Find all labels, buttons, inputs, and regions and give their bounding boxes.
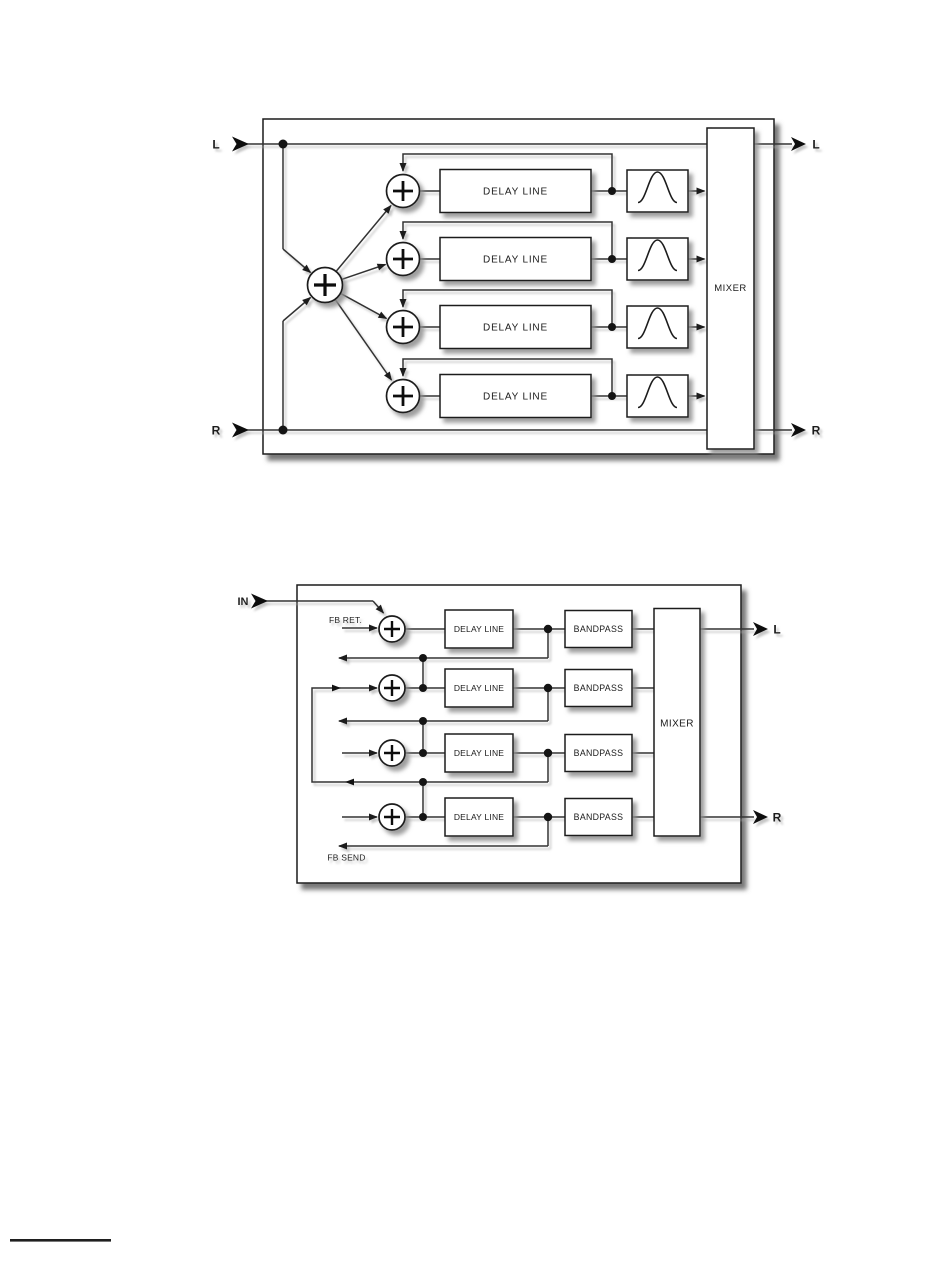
row4-bandpass-block: BANDPASS (565, 799, 632, 836)
delay-block-label: DELAY LINE (483, 392, 548, 403)
r-input-arrow-icon (232, 423, 249, 438)
bandpass-block-label: BANDPASS (574, 812, 624, 822)
row2-filter-block (627, 238, 688, 280)
diagram-top: DELAY LINE DELAY LINE DELAY LINE DELAY L… (212, 119, 821, 454)
row4-delay-block: DELAY LINE (445, 798, 513, 836)
l-output-arrow-icon (791, 137, 806, 151)
delay-block-label: DELAY LINE (454, 812, 504, 822)
central-summing-node (308, 268, 343, 303)
row2-bandpass-block: BANDPASS (565, 670, 632, 707)
row2-summing-node (387, 243, 420, 276)
mixer-label: MIXER (660, 719, 694, 730)
delay-block-label: DELAY LINE (454, 624, 504, 634)
delay-block-label: DELAY LINE (483, 187, 548, 198)
row2-summing-node (379, 675, 405, 701)
row1-bandpass-block: BANDPASS (565, 611, 632, 648)
row1-summing-node (387, 175, 420, 208)
row4-summing-node (379, 804, 405, 830)
row4-delay-block: DELAY LINE (440, 375, 591, 418)
l-input-arrow-icon (232, 137, 249, 152)
bandpass-block-label: BANDPASS (574, 624, 624, 634)
in-label: IN (238, 596, 249, 608)
mixer-block: MIXER (707, 128, 754, 449)
r-output-label: R (812, 424, 821, 438)
l-output-label: L (773, 623, 780, 637)
document-page: { "colors": { "background": "#ffffff", "… (0, 0, 950, 1284)
l-output-arrow-icon (753, 622, 768, 636)
row1-delay-block: DELAY LINE (440, 170, 591, 213)
delay-block-label: DELAY LINE (483, 255, 548, 266)
row1-filter-block (627, 170, 688, 212)
bandpass-block-label: BANDPASS (574, 683, 624, 693)
r-input-label: R (212, 424, 221, 438)
fb-return-label: FB RET. (329, 615, 362, 625)
footer-rule (10, 1239, 111, 1242)
row1-summing-node (379, 616, 405, 642)
row3-bandpass-block: BANDPASS (565, 735, 632, 772)
row4-summing-node (387, 380, 420, 413)
delay-block-label: DELAY LINE (454, 683, 504, 693)
delay-block-label: DELAY LINE (454, 748, 504, 758)
row3-delay-block: DELAY LINE (440, 306, 591, 349)
mixer-block: MIXER (654, 609, 700, 837)
row1-delay-block: DELAY LINE (445, 610, 513, 648)
row3-delay-block: DELAY LINE (445, 734, 513, 772)
r-output-arrow-icon (753, 810, 768, 824)
row2-delay-block: DELAY LINE (445, 669, 513, 707)
row3-summing-node (387, 311, 420, 344)
bandpass-block-label: BANDPASS (574, 748, 624, 758)
mixer-label: MIXER (714, 283, 747, 294)
in-arrow-icon (251, 594, 268, 609)
r-output-label: R (773, 811, 782, 825)
row4-filter-block (627, 375, 688, 417)
l-input-label: L (212, 138, 219, 152)
l-output-label: L (812, 138, 819, 152)
r-output-arrow-icon (791, 423, 806, 437)
row2-delay-block: DELAY LINE (440, 238, 591, 281)
page-canvas: DELAY LINE DELAY LINE DELAY LINE DELAY L… (0, 0, 950, 1284)
row3-summing-node (379, 740, 405, 766)
fb-send-label: FB SEND (327, 853, 365, 863)
delay-block-label: DELAY LINE (483, 323, 548, 334)
diagram-bottom: DELAY LINE DELAY LINE DELAY LINE DELAY L… (238, 585, 782, 883)
row3-filter-block (627, 306, 688, 348)
